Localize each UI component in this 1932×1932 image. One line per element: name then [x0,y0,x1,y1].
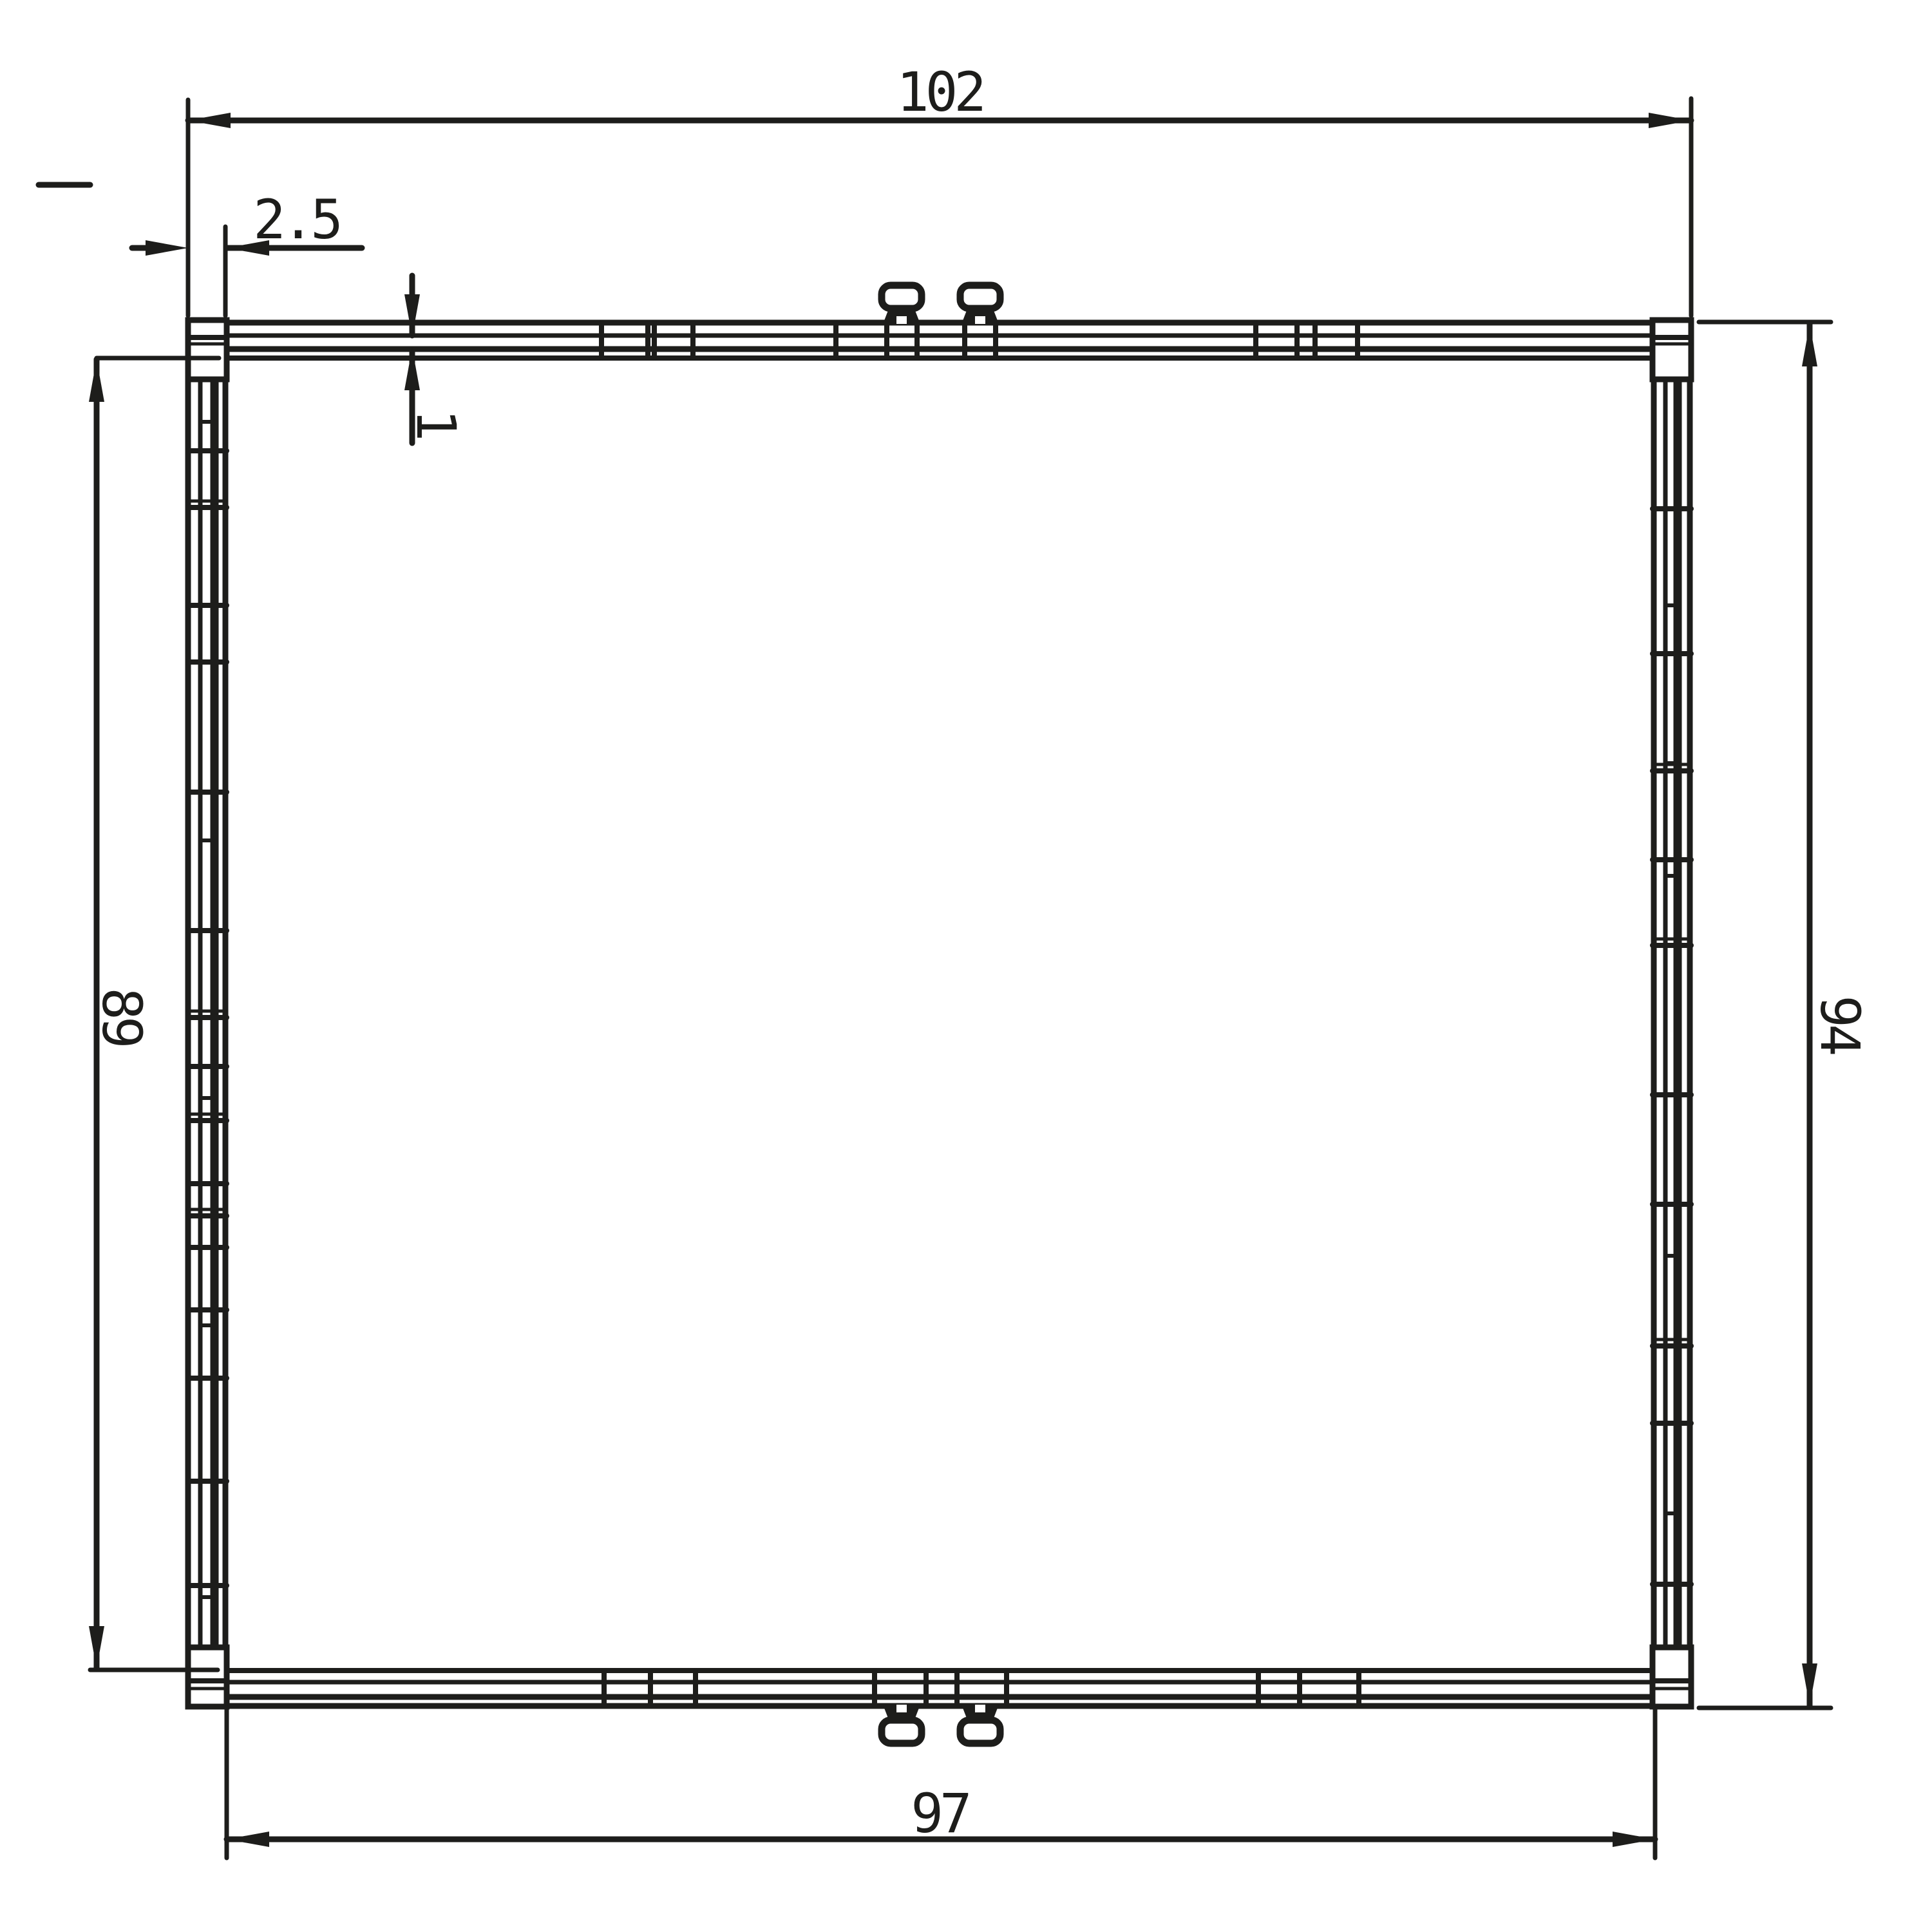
fastener-clip-bottom [882,1705,922,1743]
dimension-arrow [89,359,104,402]
dim-height-left-label: 89 [90,987,153,1045]
clip-head-icon [882,1720,922,1743]
dim-height-right-label: 94 [1808,995,1871,1054]
corner-block-outline [188,320,227,379]
corner-block-outline [188,1647,227,1707]
right-wall [1653,379,1691,1647]
left-wall [188,379,227,1647]
clip-notch [896,316,907,324]
corner-block [1653,320,1691,379]
clip-head-icon [882,285,922,308]
dimension-arrow [404,294,420,337]
corner-block-outline [1653,320,1691,379]
dim-board-thickness-label: 1 [404,409,468,438]
corner-block-outline [1653,1647,1691,1707]
technical-drawing: 102 2.5 1 89 94 97 [0,0,1932,1932]
dimension-arrow [404,348,420,390]
clip-notch [896,1705,907,1712]
dim-width-inner-label: 97 [911,1782,969,1845]
dimension-arrow [1802,324,1817,366]
drawing-canvas: 102 2.5 1 89 94 97 [0,0,1932,1932]
dim-width-total-label: 102 [896,61,983,124]
corner-block [188,1647,227,1707]
fastener-clip-bottom [960,1705,1000,1743]
corner-block [188,320,227,379]
dim-wall-offset-label: 2.5 [253,188,339,251]
fastener-clip-top [882,285,922,324]
dimension-arrow [1613,1832,1655,1847]
dimension-arrow [227,1832,269,1847]
clip-notch [975,1705,985,1712]
dimension-arrow [1802,1663,1817,1706]
dimension-arrow [89,1626,104,1669]
drawing-geometry [39,99,1831,1858]
dimension-arrow [188,113,231,128]
clip-head-icon [960,285,1000,308]
bottom-rail [188,1671,1691,1706]
dimension-arrow [146,240,188,256]
clip-head-icon [960,1720,1000,1743]
dimension-arrow [1649,113,1691,128]
corner-block [1653,1647,1691,1707]
clip-notch [975,316,985,324]
fastener-clip-top [960,285,1000,324]
